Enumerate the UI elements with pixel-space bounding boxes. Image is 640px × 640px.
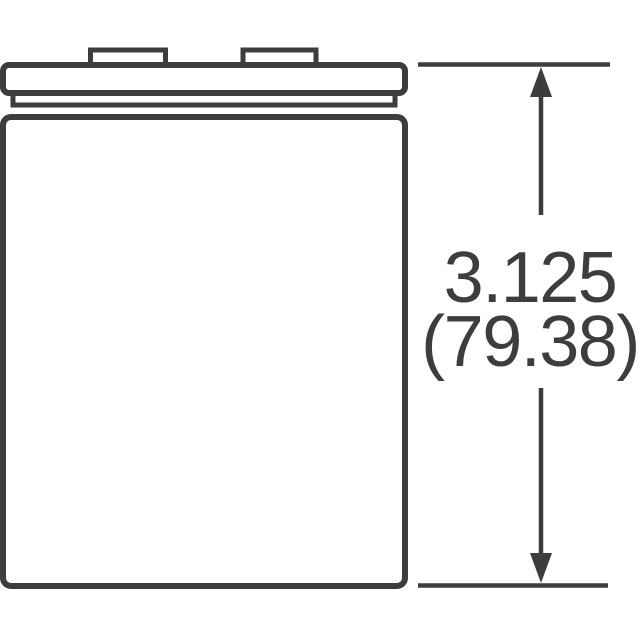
capacitor-dimension-drawing: 3.125 (79.38): [0, 0, 640, 640]
drawing-canvas: 3.125 (79.38): [0, 0, 640, 640]
dimension-arrow-up: [530, 67, 552, 97]
capacitor-can-body: [3, 117, 405, 586]
capacitor-lid: [3, 65, 405, 93]
dimension-arrow-down: [530, 553, 552, 583]
dimension-value-millimeters: (79.38): [421, 302, 639, 382]
